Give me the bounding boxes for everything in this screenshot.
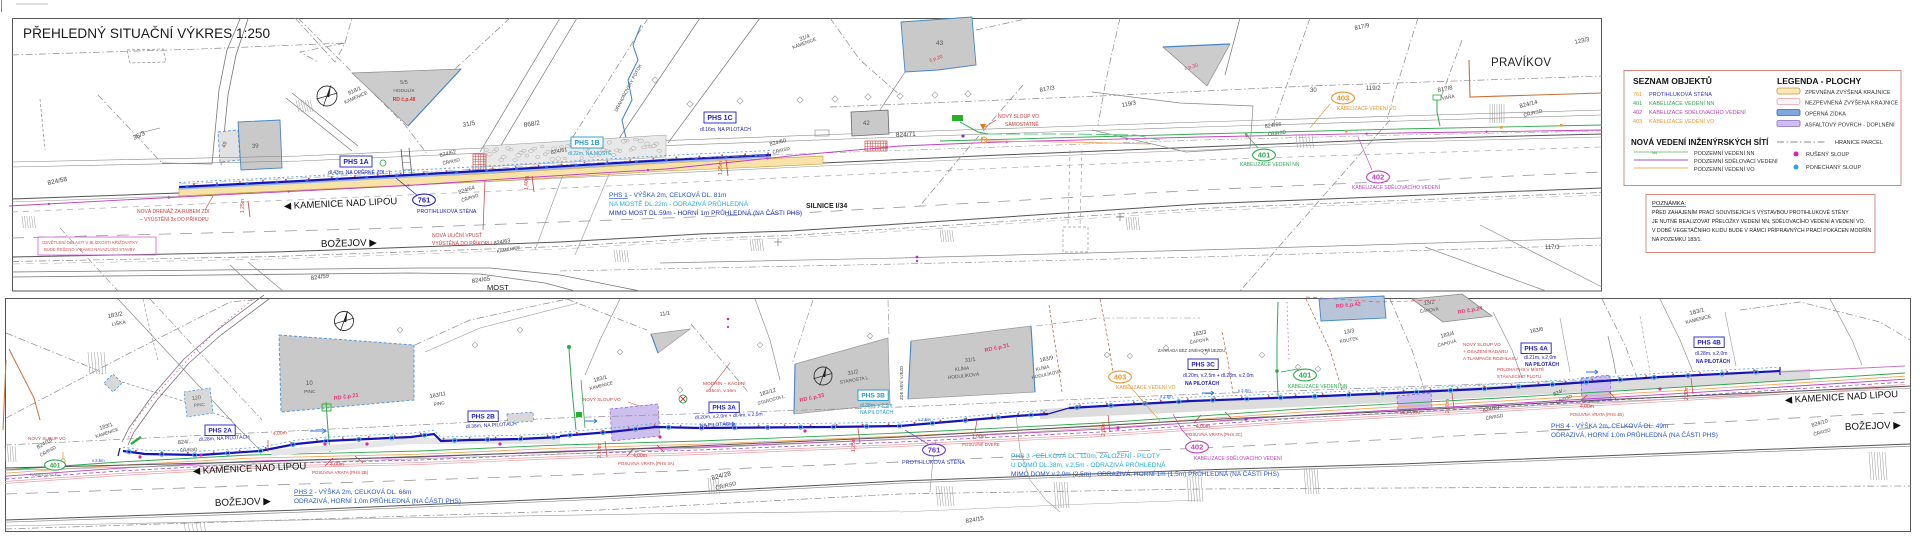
svg-text:119/2: 119/2 <box>1366 86 1381 92</box>
svg-text:PHS 1B: PHS 1B <box>574 140 599 147</box>
svg-text:117/3: 117/3 <box>1545 245 1560 251</box>
svg-text:v 2,5m: v 2,5m <box>918 417 931 422</box>
svg-text:2,10m: 2,10m <box>597 444 603 458</box>
svg-text:v 2,5m: v 2,5m <box>92 458 105 463</box>
svg-text:NN: NN <box>1652 151 1658 155</box>
svg-text:PHS 4A: PHS 4A <box>1524 346 1548 353</box>
svg-text:403: 403 <box>1337 94 1350 103</box>
svg-text:403: 403 <box>1114 373 1127 382</box>
svg-text:A TLAMPAČE ROZHLASU: A TLAMPAČE ROZHLASU <box>1463 355 1518 361</box>
svg-text:401: 401 <box>1258 151 1271 160</box>
svg-text:4,00m: 4,00m <box>273 430 287 437</box>
svg-text:NA PILOTÁCH: NA PILOTÁCH <box>1696 358 1730 365</box>
svg-text:U DOMŮ DL.38m, v.2,5m - ODRAZI: U DOMŮ DL.38m, v.2,5m - ODRAZIVÁ PRŮHLED… <box>1011 460 1166 469</box>
svg-text:1,25m: 1,25m <box>718 161 724 175</box>
svg-text:4,00m: 4,00m <box>1196 424 1210 430</box>
svg-text:KABELIZACE VEDENÍ NN: KABELIZACE VEDENÍ NN <box>1288 383 1348 390</box>
svg-text:ODRAZIVÁ, HORNÍ 1,0m PRŮHLEDNÁ: ODRAZIVÁ, HORNÍ 1,0m PRŮHLEDNÁ (NA ČÁSTI… <box>294 496 461 505</box>
svg-text:42: 42 <box>863 121 870 127</box>
svg-text:OPĚRNÁ ZÍDKA: OPĚRNÁ ZÍDKA <box>1805 110 1846 118</box>
svg-text:POZNÁMKA:: POZNÁMKA: <box>1652 200 1687 207</box>
svg-text:PHS 4 - VÝŠKA 2m, CELKOVÁ DL.: PHS 4 - VÝŠKA 2m, CELKOVÁ DL. 49m <box>1551 421 1668 430</box>
svg-text:NOVÝ SLOUP VO: NOVÝ SLOUP VO <box>1463 341 1501 347</box>
svg-text:2,30m: 2,30m <box>1684 386 1690 400</box>
svg-text:KABELIZACE...: KABELIZACE... <box>30 472 62 477</box>
svg-text:KABELIZACE SDĚLOVACÍHO VEDENÍ: KABELIZACE SDĚLOVACÍHO VEDENÍ <box>1649 108 1746 116</box>
svg-text:PHS 2B: PHS 2B <box>471 414 495 421</box>
svg-text:PROTIHLUKOVÁ STĚNA: PROTIHLUKOVÁ STĚNA <box>417 207 477 215</box>
svg-text:PHS 1A: PHS 1A <box>343 159 368 166</box>
svg-text:30: 30 <box>1310 88 1317 94</box>
svg-text:RUŠENÝ SLOUP: RUŠENÝ SLOUP <box>1806 151 1849 158</box>
svg-text:402: 402 <box>1372 173 1385 182</box>
svg-text:PŘED ZAHÁJENÍM PRACÍ SOUVISEJÍ: PŘED ZAHÁJENÍM PRACÍ SOUVISEJÍCH S VÝSTA… <box>1652 208 1849 216</box>
svg-text:STÁVAJÍCÍHO PLOTU: STÁVAJÍCÍHO PLOTU <box>1497 374 1541 379</box>
svg-text:BEZ VRAT: BEZ VRAT <box>1400 410 1421 415</box>
svg-text:402: 402 <box>1633 110 1642 116</box>
svg-text:SILNICE I/34: SILNICE I/34 <box>806 203 847 210</box>
svg-text:KABELIZACE SDĚLOVACÍHO VEDENÍ: KABELIZACE SDĚLOVACÍHO VEDENÍ <box>1352 183 1441 191</box>
svg-text:PODZEMNÍ VEDENÍ VO: PODZEMNÍ VEDENÍ VO <box>1694 166 1755 173</box>
svg-text:PINC: PINC <box>304 389 316 395</box>
svg-text:401: 401 <box>50 462 61 469</box>
svg-text:POSUVNÁ VRATA (PHS 3A): POSUVNÁ VRATA (PHS 3A) <box>618 461 675 466</box>
svg-text:NOVÝ SLOUP VO: NOVÝ SLOUP VO <box>28 435 66 441</box>
svg-text:120: 120 <box>192 395 202 402</box>
svg-text:10: 10 <box>306 381 313 387</box>
svg-text:V DOBĚ VEGETAČNÍHO KLIDU BUDE: V DOBĚ VEGETAČNÍHO KLIDU BUDE V RÁMCI PŘ… <box>1652 226 1871 234</box>
svg-text:BOŽEJOV ▶: BOŽEJOV ▶ <box>1845 420 1902 433</box>
svg-text:761: 761 <box>928 446 941 455</box>
svg-text:PONECHANÝ SLOUP: PONECHANÝ SLOUP <box>1806 164 1861 171</box>
svg-text:43: 43 <box>936 40 944 47</box>
svg-text:PHS 3B: PHS 3B <box>861 393 885 400</box>
svg-text:POSUVNÉ DVEŘE: POSUVNÉ DVEŘE <box>962 442 1000 447</box>
svg-text:RD č.p.48: RD č.p.48 <box>393 97 416 103</box>
svg-text:KABELIZACE VEDENÍ NN: KABELIZACE VEDENÍ NN <box>1240 161 1300 168</box>
svg-text:MOST: MOST <box>487 283 509 292</box>
svg-text:KABELIZACE SDĚLOVACÍHO VEDENÍ: KABELIZACE SDĚLOVACÍHO VEDENÍ <box>1194 454 1283 462</box>
svg-text:HODULÍK: HODULÍK <box>393 87 415 94</box>
svg-text:PHS 1C: PHS 1C <box>707 115 732 122</box>
svg-text:ø35cm, v.16m: ø35cm, v.16m <box>706 388 736 394</box>
svg-text:1,40m: 1,40m <box>524 176 530 190</box>
svg-text:PROTIHLUKOVÁ STĚNA: PROTIHLUKOVÁ STĚNA <box>1649 90 1712 98</box>
svg-text:KABELIZACE VEDENÍ VO: KABELIZACE VEDENÍ VO <box>1116 384 1176 391</box>
svg-text:PODZEMNÍ SDĚLOVACÍ VEDENÍ: PODZEMNÍ SDĚLOVACÍ VEDENÍ <box>1694 157 1778 165</box>
svg-text:dl.22m, NA MOSTĚ: dl.22m, NA MOSTĚ <box>568 149 612 157</box>
svg-text:MIMO DOMY v.2,0m (2,5m) - ODRA: MIMO DOMY v.2,0m (2,5m) - ODRAZIVÁ, HORN… <box>1011 469 1279 478</box>
svg-text:dl.20m, v.2,5m + dl.28m, v.2,0: dl.20m, v.2,5m + dl.28m, v.2,0m <box>1183 373 1254 379</box>
svg-text:JE NUTNÉ REALIZOVAT PŘELOŽKY V: JE NUTNÉ REALIZOVAT PŘELOŽKY VEDENÍ NN, … <box>1652 217 1865 225</box>
svg-text:POSUVNÁ VRATA (PHS 3C): POSUVNÁ VRATA (PHS 3C) <box>1186 432 1243 437</box>
svg-text:HRANICE PARCEL: HRANICE PARCEL <box>1835 140 1883 146</box>
svg-text:761: 761 <box>1633 92 1642 98</box>
svg-text:1,00m: 1,00m <box>972 434 986 440</box>
svg-text:dl.16m, NA PILOTÁCH: dl.16m, NA PILOTÁCH <box>700 126 751 133</box>
svg-text:ODRAZIVÁ, HORNÍ 1,0m PRŮHLEDNÁ: ODRAZIVÁ, HORNÍ 1,0m PRŮHLEDNÁ (NA ČÁSTI… <box>1551 430 1718 439</box>
svg-text:v 2,0m: v 2,0m <box>1238 388 1251 393</box>
svg-text:402: 402 <box>1191 443 1204 452</box>
svg-text:VYÚSTĚNÁ DO PŘÍKOPU: VYÚSTĚNÁ DO PŘÍKOPU <box>432 239 492 247</box>
svg-text:– VYÚSTĚNÍ 3x DO PŘÍKOPU: – VYÚSTĚNÍ 3x DO PŘÍKOPU <box>140 215 209 223</box>
svg-text:BOŽEJOV ▶: BOŽEJOV ▶ <box>215 496 272 509</box>
svg-text:NOVÁ VEDENÍ INŽENÝRSKÝCH SÍTÍ: NOVÁ VEDENÍ INŽENÝRSKÝCH SÍTÍ <box>1631 138 1769 147</box>
svg-text:ZAHRADA BEZ JINÉHO PŘÍJEZDU: ZAHRADA BEZ JINÉHO PŘÍJEZDU <box>1158 348 1225 353</box>
svg-text:OSVĚTLENÍ OBLASTI V BLÍZKOSTI: OSVĚTLENÍ OBLASTI V BLÍZKOSTI KŘIŽOVATKY <box>42 240 138 245</box>
svg-text:1,25m: 1,25m <box>240 199 246 213</box>
svg-text:403: 403 <box>1633 119 1642 125</box>
svg-text:824/71: 824/71 <box>896 131 917 139</box>
svg-text:PHS 4B: PHS 4B <box>1697 340 1721 347</box>
svg-text:PŘEHLEDNÝ SITUAČNÍ VÝKRES 1:2: PŘEHLEDNÝ SITUAČNÍ VÝKRES 1:250 <box>23 26 270 41</box>
svg-text:PHS 2A: PHS 2A <box>208 428 232 435</box>
svg-text:4,00m: 4,00m <box>1580 404 1594 410</box>
svg-text:39: 39 <box>252 143 260 149</box>
svg-text:824/...: 824/... <box>178 439 194 446</box>
svg-text:LEGENDA - PLOCHY: LEGENDA - PLOCHY <box>1777 76 1862 86</box>
svg-text:dl.43m, NA OPĚRNÉ ZDI: dl.43m, NA OPĚRNÉ ZDI <box>328 168 384 176</box>
svg-text:NA PILOTÁCH: NA PILOTÁCH <box>860 409 893 416</box>
svg-text:ZPEVNĚNÁ ZVÝŠENÁ KRAJNICE: ZPEVNĚNÁ ZVÝŠENÁ KRAJNICE <box>1805 88 1891 96</box>
svg-text:NOVÁ DRENÁŽ ZA RUBEM ZDI: NOVÁ DRENÁŽ ZA RUBEM ZDI <box>137 207 210 215</box>
svg-text:PHS 3 - CELKOVÁ DL. 110m, ZALO: PHS 3 - CELKOVÁ DL. 110m, ZALOŽENÍ - PIL… <box>1011 451 1161 460</box>
svg-text:POLOHA PHS V MÍSTĚ: POLOHA PHS V MÍSTĚ <box>1497 367 1544 372</box>
svg-text:ASFALTOVÝ POVRCH - DOPLNĚNÍ: ASFALTOVÝ POVRCH - DOPLNĚNÍ <box>1805 121 1895 129</box>
svg-text:KABELIZACE VEDENÍ NN: KABELIZACE VEDENÍ NN <box>1649 100 1714 107</box>
svg-text:v 2,5m: v 2,5m <box>1160 394 1173 399</box>
svg-text:PHS 3A: PHS 3A <box>712 405 736 412</box>
svg-text:SEZNAM OBJEKTŮ: SEZNAM OBJEKTŮ <box>1633 75 1712 86</box>
svg-text:KABELIZACE VEDENÍ VO: KABELIZACE VEDENÍ VO <box>1649 118 1715 125</box>
svg-text:PODZEMNÍ VEDENÍ NN: PODZEMNÍ VEDENÍ NN <box>1694 150 1755 157</box>
svg-text:MIMO MOST DL.59m - HORNÍ 1m PR: MIMO MOST DL.59m - HORNÍ 1m PRŮHLEDNÁ (N… <box>609 208 802 217</box>
svg-text:BUDE ŘEŠENO V RÁMCI NAVAZUJÍCÍ: BUDE ŘEŠENO V RÁMCI NAVAZUJÍCÍ STAVBY <box>44 247 135 252</box>
svg-text:NA PILOTÁCH: NA PILOTÁCH <box>1185 380 1219 387</box>
svg-text:dl.38m, v.2,5m: dl.38m, v.2,5m <box>860 403 892 409</box>
svg-text:1,25m: 1,25m <box>851 438 857 452</box>
svg-text:NOVÝ SLOUP VO: NOVÝ SLOUP VO <box>583 396 621 402</box>
svg-text:dl.28m, v.2,0m: dl.28m, v.2,0m <box>1695 351 1727 357</box>
svg-text:4,00m: 4,00m <box>330 462 344 468</box>
svg-text:SAMOSTATNĚ: SAMOSTATNĚ <box>1005 120 1039 128</box>
svg-text:dl.21m, v.2,0m: dl.21m, v.2,0m <box>1524 355 1556 361</box>
svg-text:PHS 2 - VÝŠKA 2m, CELKOVÁ DL.: PHS 2 - VÝŠKA 2m, CELKOVÁ DL. 66m <box>294 487 411 496</box>
svg-text:KABELIZACE VEDENÍ VO: KABELIZACE VEDENÍ VO <box>1337 105 1397 112</box>
svg-text:+ OSAZENÍ RADARU: + OSAZENÍ RADARU <box>1463 348 1508 354</box>
svg-text:761: 761 <box>418 196 431 205</box>
svg-text:PHS 3C: PHS 3C <box>1191 362 1215 369</box>
svg-text:2,30m: 2,30m <box>1445 399 1451 413</box>
svg-text:31/1: 31/1 <box>965 357 976 364</box>
svg-text:BOŽEJOV ▶: BOŽEJOV ▶ <box>321 238 378 250</box>
svg-text:NOVÝ SLOUP VO: NOVÝ SLOUP VO <box>998 113 1039 120</box>
svg-text:PROTIHLUKOVÁ STĚNA: PROTIHLUKOVÁ STĚNA <box>902 458 965 466</box>
svg-text:NEZPEVNĚNÁ ZVÝŠENÁ KRAJNICE: NEZPEVNĚNÁ ZVÝŠENÁ KRAJNICE <box>1805 99 1899 107</box>
svg-text:NA POZEMKU 183/1.: NA POZEMKU 183/1. <box>1652 237 1702 243</box>
svg-text:PHS 1 - VÝŠKA 2m, CELKOVÁ DL.: PHS 1 - VÝŠKA 2m, CELKOVÁ DL. 81m <box>609 190 726 199</box>
svg-text:5/5: 5/5 <box>400 80 408 86</box>
svg-text:401: 401 <box>1299 371 1312 380</box>
svg-text:NOVÁ ULIČNÍ VPUSŤ: NOVÁ ULIČNÍ VPUSŤ <box>432 231 482 239</box>
svg-text:4,00m: 4,00m <box>633 453 647 459</box>
svg-text:PRAVÍKOV: PRAVÍKOV <box>1491 56 1551 69</box>
svg-text:NA MOSTĚ DL.22m - ODRAZIVÁ PRŮ: NA MOSTĚ DL.22m - ODRAZIVÁ PRŮHLEDNÁ <box>609 199 749 208</box>
svg-text:POSUVNÁ VRATA (PHS 4B): POSUVNÁ VRATA (PHS 4B) <box>1570 412 1624 417</box>
svg-text:ZDE NENÍ VJEZD: ZDE NENÍ VJEZD <box>899 366 904 400</box>
svg-text:2,30m: 2,30m <box>1101 422 1107 436</box>
svg-text:401: 401 <box>1633 101 1642 107</box>
svg-text:POSUVNÁ VRATA (PHS 2B): POSUVNÁ VRATA (PHS 2B) <box>312 470 369 475</box>
